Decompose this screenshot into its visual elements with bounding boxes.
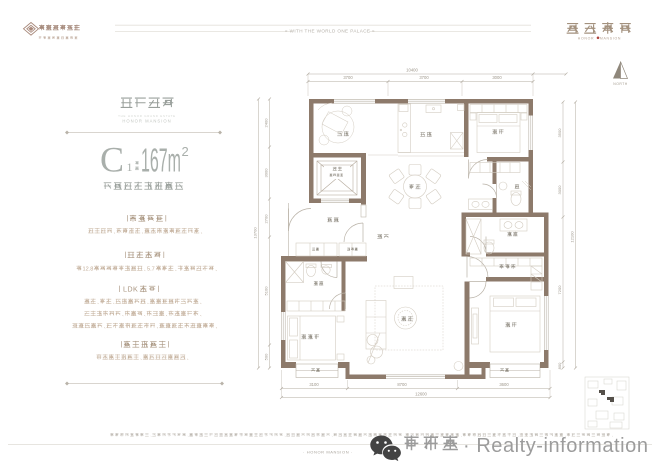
svg-text:167m: 167m xyxy=(141,142,181,179)
svg-text:THE HONOR GRAND ESTATE: THE HONOR GRAND ESTATE xyxy=(118,114,176,118)
svg-text:3000: 3000 xyxy=(557,185,562,195)
svg-text:MANSION: MANSION xyxy=(600,36,621,40)
svg-text:7200: 7200 xyxy=(557,285,562,295)
svg-text:3100: 3100 xyxy=(309,382,319,387)
svg-text:1: 1 xyxy=(127,160,133,174)
svg-text:3500: 3500 xyxy=(557,128,562,138)
svg-text:5.7: 5.7 xyxy=(147,266,155,272)
svg-text:2: 2 xyxy=(182,144,189,159)
svg-text:13700: 13700 xyxy=(253,227,258,239)
svg-text:8700: 8700 xyxy=(397,382,407,387)
svg-text:« WITH THE WORLD ONE PALACE »: « WITH THE WORLD ONE PALACE » xyxy=(285,29,375,34)
svg-text:800: 800 xyxy=(557,362,562,369)
svg-text:12100: 12100 xyxy=(570,231,575,243)
svg-text:LDK: LDK xyxy=(123,284,138,293)
svg-text:3700: 3700 xyxy=(419,75,429,80)
svg-text:2700: 2700 xyxy=(264,214,269,224)
svg-text:10400: 10400 xyxy=(406,68,418,73)
svg-text:3700: 3700 xyxy=(343,75,353,80)
svg-text:12600: 12600 xyxy=(415,392,427,397)
svg-text:3000: 3000 xyxy=(264,168,269,178)
svg-text:12.8: 12.8 xyxy=(83,266,94,272)
svg-text:· Realty-information: · Realty-information xyxy=(463,435,649,457)
svg-text:HONOR: HONOR xyxy=(578,36,595,40)
svg-text:C: C xyxy=(100,140,124,180)
svg-text:500: 500 xyxy=(264,353,269,360)
svg-text:NORTH: NORTH xyxy=(613,82,628,86)
svg-text:5100: 5100 xyxy=(264,286,269,296)
svg-text:· HONOR MANSION ·: · HONOR MANSION · xyxy=(303,450,353,455)
svg-text:3600: 3600 xyxy=(499,382,509,387)
svg-text:3000: 3000 xyxy=(492,75,502,80)
svg-text:HONOR MANSION: HONOR MANSION xyxy=(122,119,171,124)
svg-text:2400: 2400 xyxy=(264,118,269,128)
